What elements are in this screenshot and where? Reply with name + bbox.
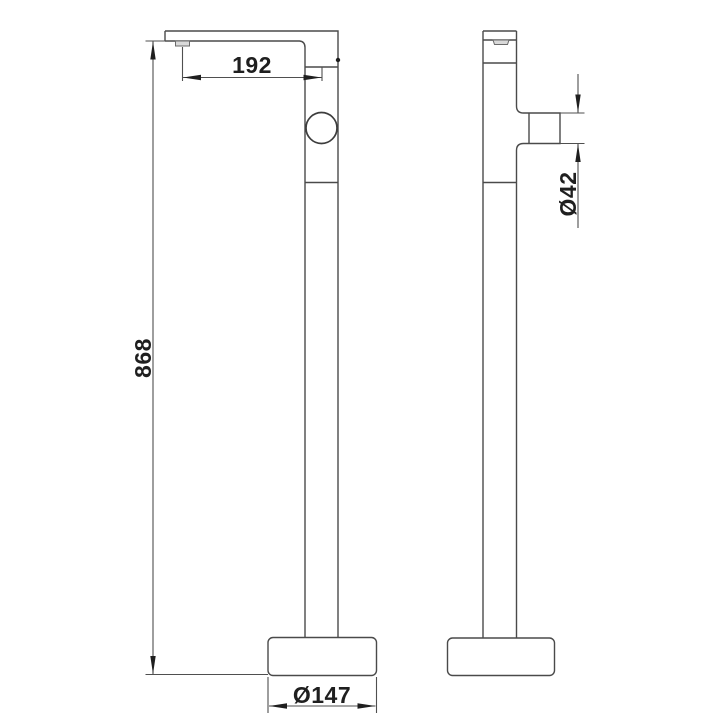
dim-label-spout-reach: 192 bbox=[232, 52, 272, 78]
dim-label-base-diameter: Ø147 bbox=[293, 682, 351, 708]
dim-label-knob-diameter: Ø42 bbox=[555, 172, 581, 217]
canvas-background bbox=[0, 0, 720, 720]
faucet-technical-drawing: 192 868 Ø147 Ø42 bbox=[0, 0, 720, 720]
side-aerator-notch bbox=[493, 40, 509, 45]
reference-dot bbox=[336, 58, 340, 62]
drawing-canvas: 192 868 Ø147 Ø42 bbox=[0, 0, 720, 720]
front-aerator-notch bbox=[176, 41, 190, 46]
dim-label-total-height: 868 bbox=[130, 338, 156, 378]
